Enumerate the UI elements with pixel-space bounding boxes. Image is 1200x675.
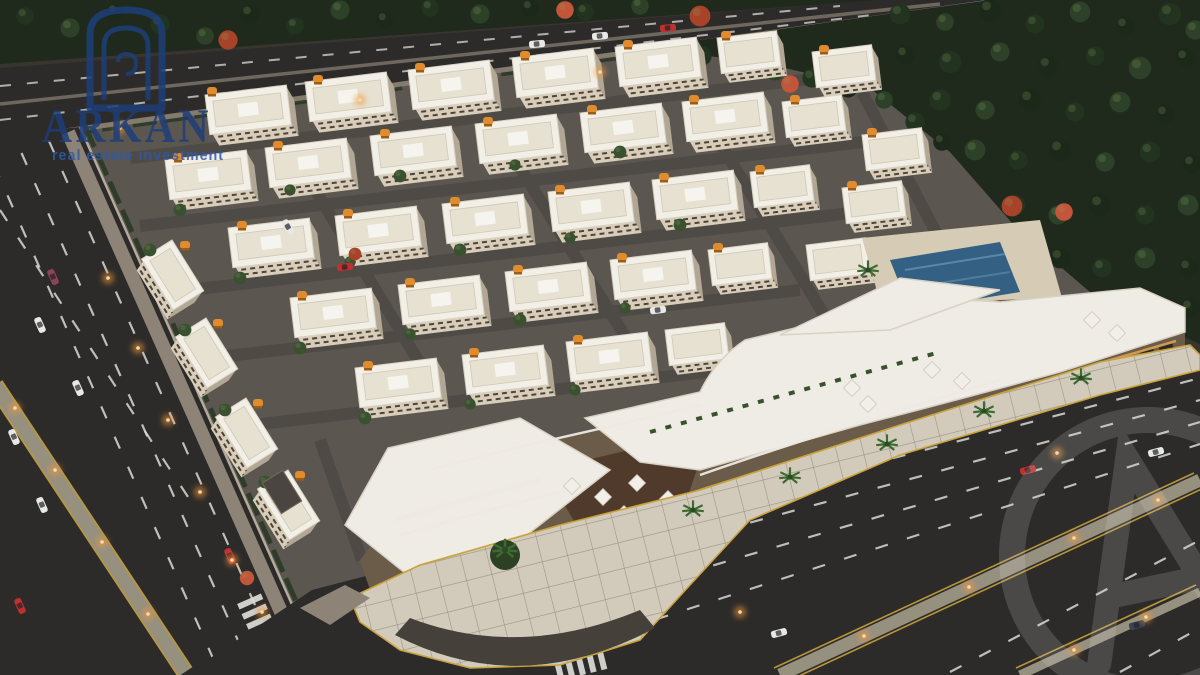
watermark-tagline-text: real estate investment <box>52 147 224 164</box>
aerial-render: ARKAN real estate investment <box>0 0 1200 675</box>
watermark-brand-text: ARKAN <box>42 100 212 153</box>
